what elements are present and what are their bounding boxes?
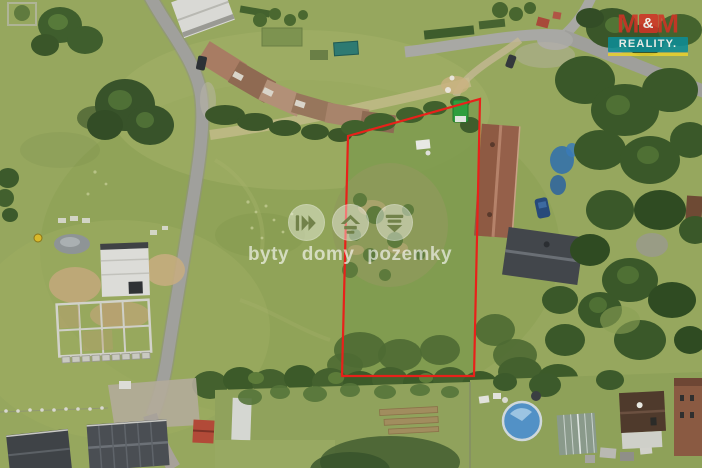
long-red-roof-building [474,124,520,238]
aerial-photo: byty domy pozemky M & M REALITY. [0,0,702,468]
brown-roof-house [619,391,666,433]
pool [503,402,541,440]
bottom-right-yard [470,370,702,468]
garden-bottom [215,382,470,468]
greenhouse [557,413,598,456]
brick-house [674,378,702,456]
